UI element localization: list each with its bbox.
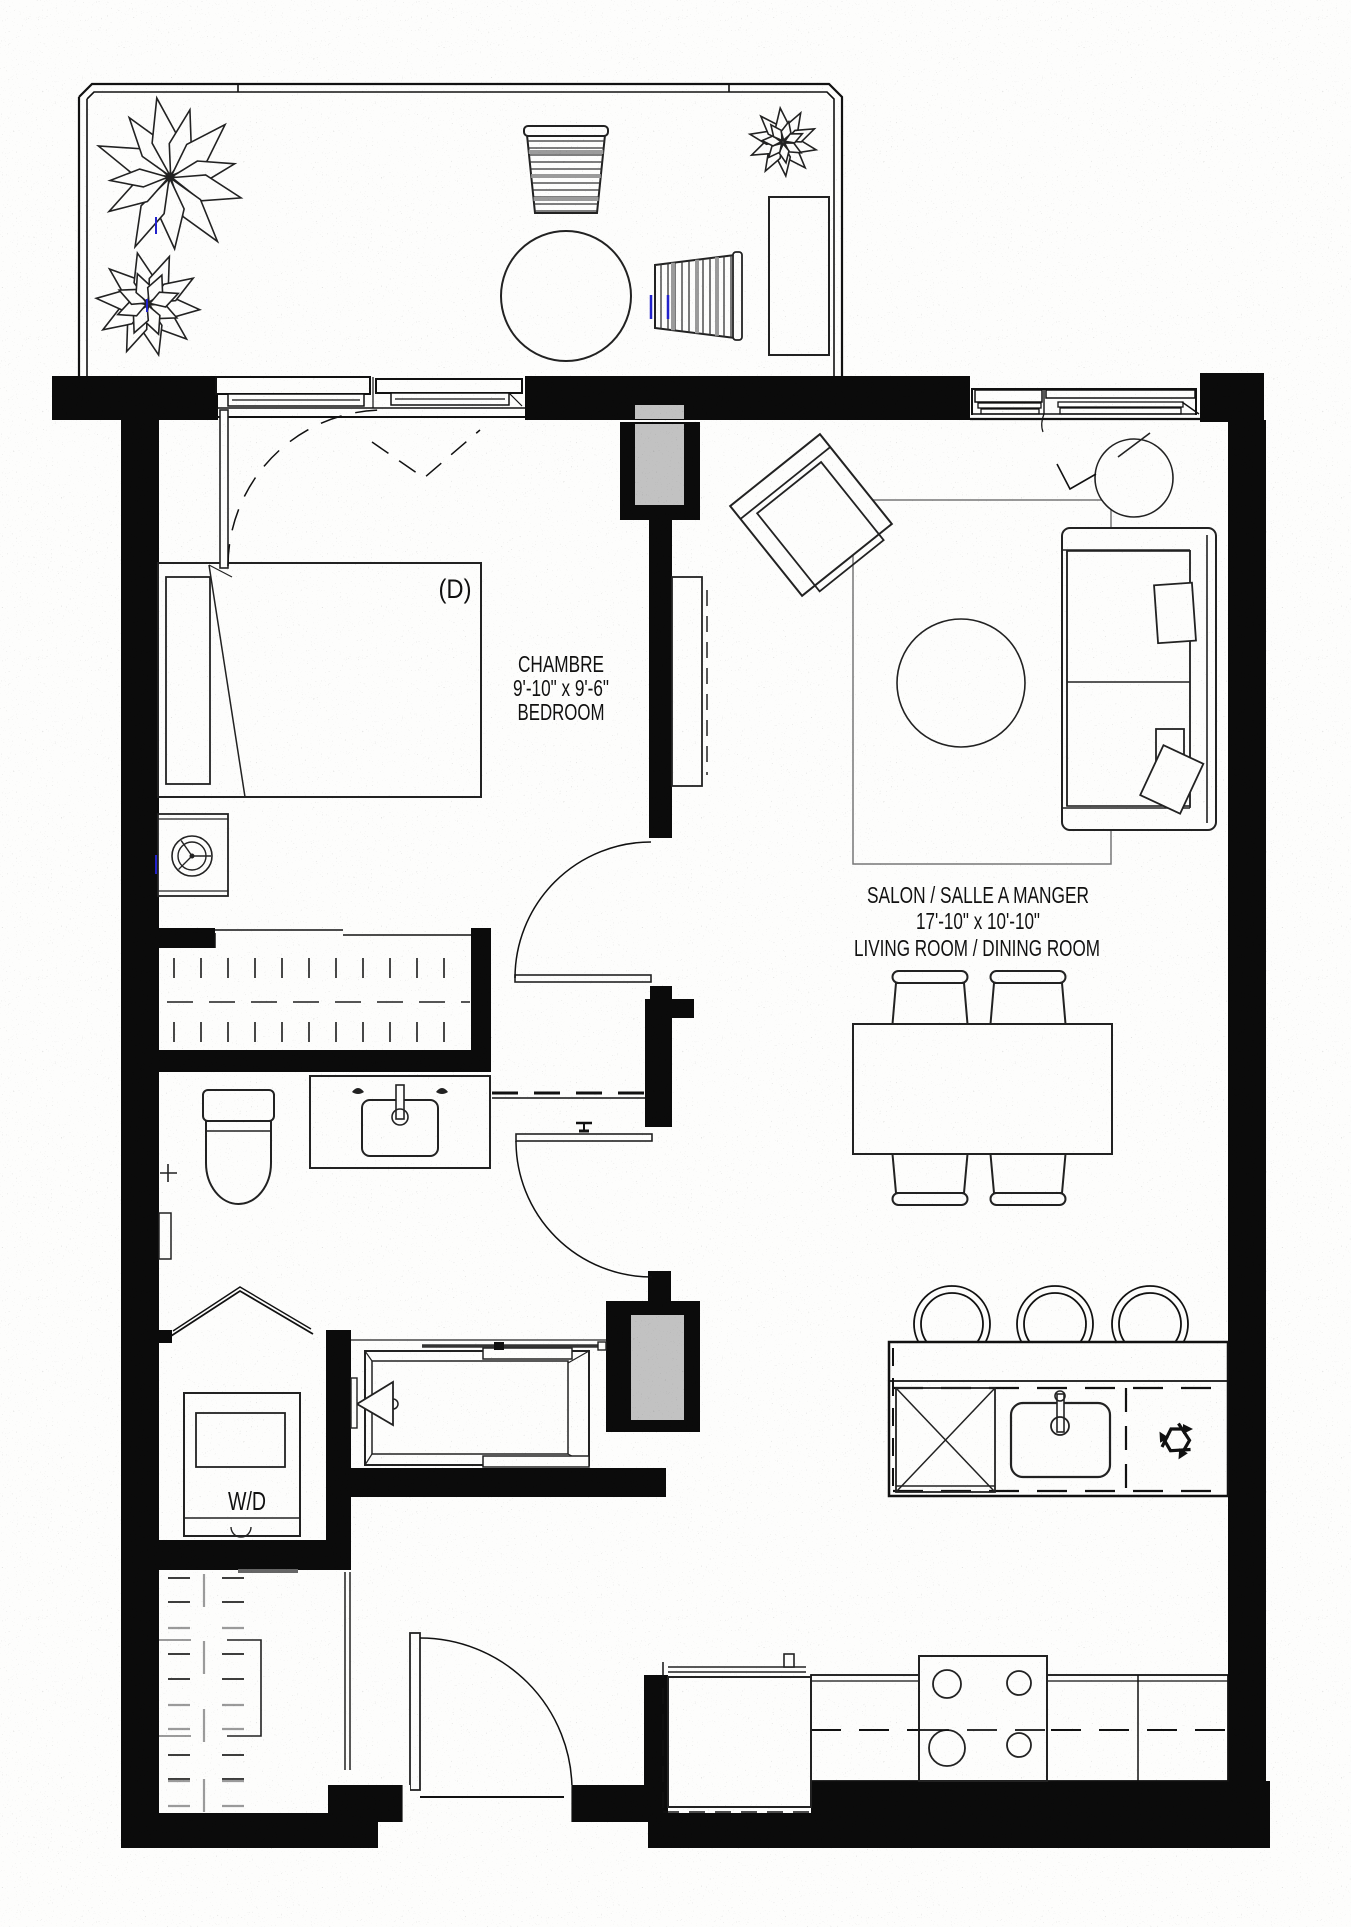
svg-text:17'-10" x 10'-10": 17'-10" x 10'-10" bbox=[916, 908, 1040, 934]
svg-text:W/D: W/D bbox=[228, 1486, 266, 1516]
svg-text:LIVING ROOM / DINING ROOM: LIVING ROOM / DINING ROOM bbox=[854, 935, 1100, 961]
svg-text:BEDROOM: BEDROOM bbox=[518, 699, 605, 725]
svg-text:9'-10" x 9'-6": 9'-10" x 9'-6" bbox=[513, 675, 609, 701]
svg-text:(D): (D) bbox=[439, 574, 472, 604]
svg-text:CHAMBRE: CHAMBRE bbox=[518, 651, 604, 677]
svg-text:SALON / SALLE A MANGER: SALON / SALLE A MANGER bbox=[867, 882, 1089, 908]
